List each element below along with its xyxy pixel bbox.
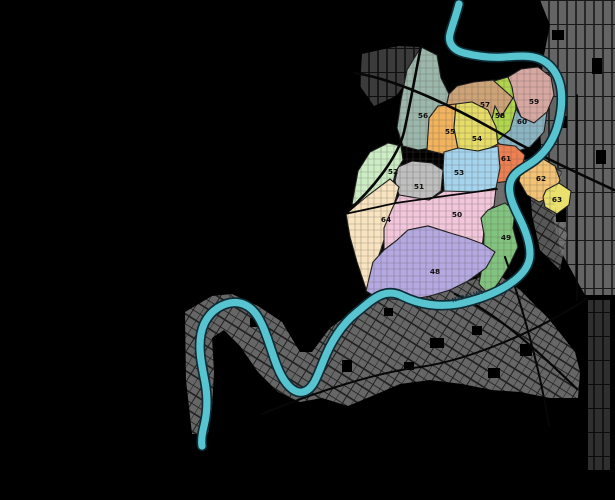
ward-53-region[interactable]: [443, 146, 500, 194]
city-ward-map: NIDELVA 56 57 58 59 60 55 54 61 62 63 53…: [0, 0, 615, 500]
ward-map-canvas: NIDELVA 56 57 58 59 60 55 54 61 62 63 53…: [0, 0, 615, 500]
blocks-right-strip: [588, 300, 610, 470]
